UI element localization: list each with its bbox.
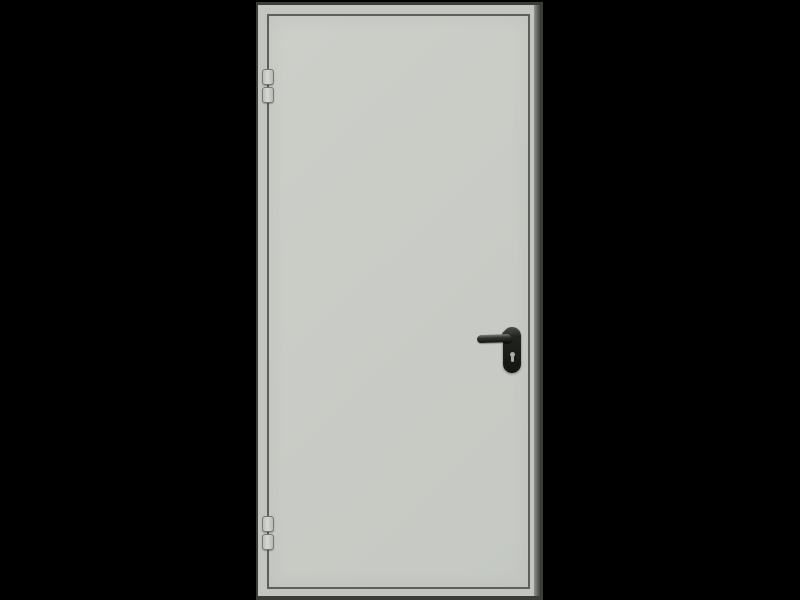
hinge-knuckle xyxy=(262,69,274,85)
hinge-knuckle xyxy=(262,534,274,550)
bottom-hinge xyxy=(262,516,274,550)
top-hinge xyxy=(262,69,274,103)
door-handle xyxy=(477,327,523,375)
door-leaf xyxy=(267,14,530,589)
door-product-render xyxy=(0,0,800,600)
handle-lever xyxy=(477,334,511,343)
frame-right-reveal-shadow xyxy=(534,5,540,596)
hinge-knuckle xyxy=(262,87,274,103)
hinge-knuckle xyxy=(262,516,274,532)
keyhole xyxy=(510,352,515,357)
